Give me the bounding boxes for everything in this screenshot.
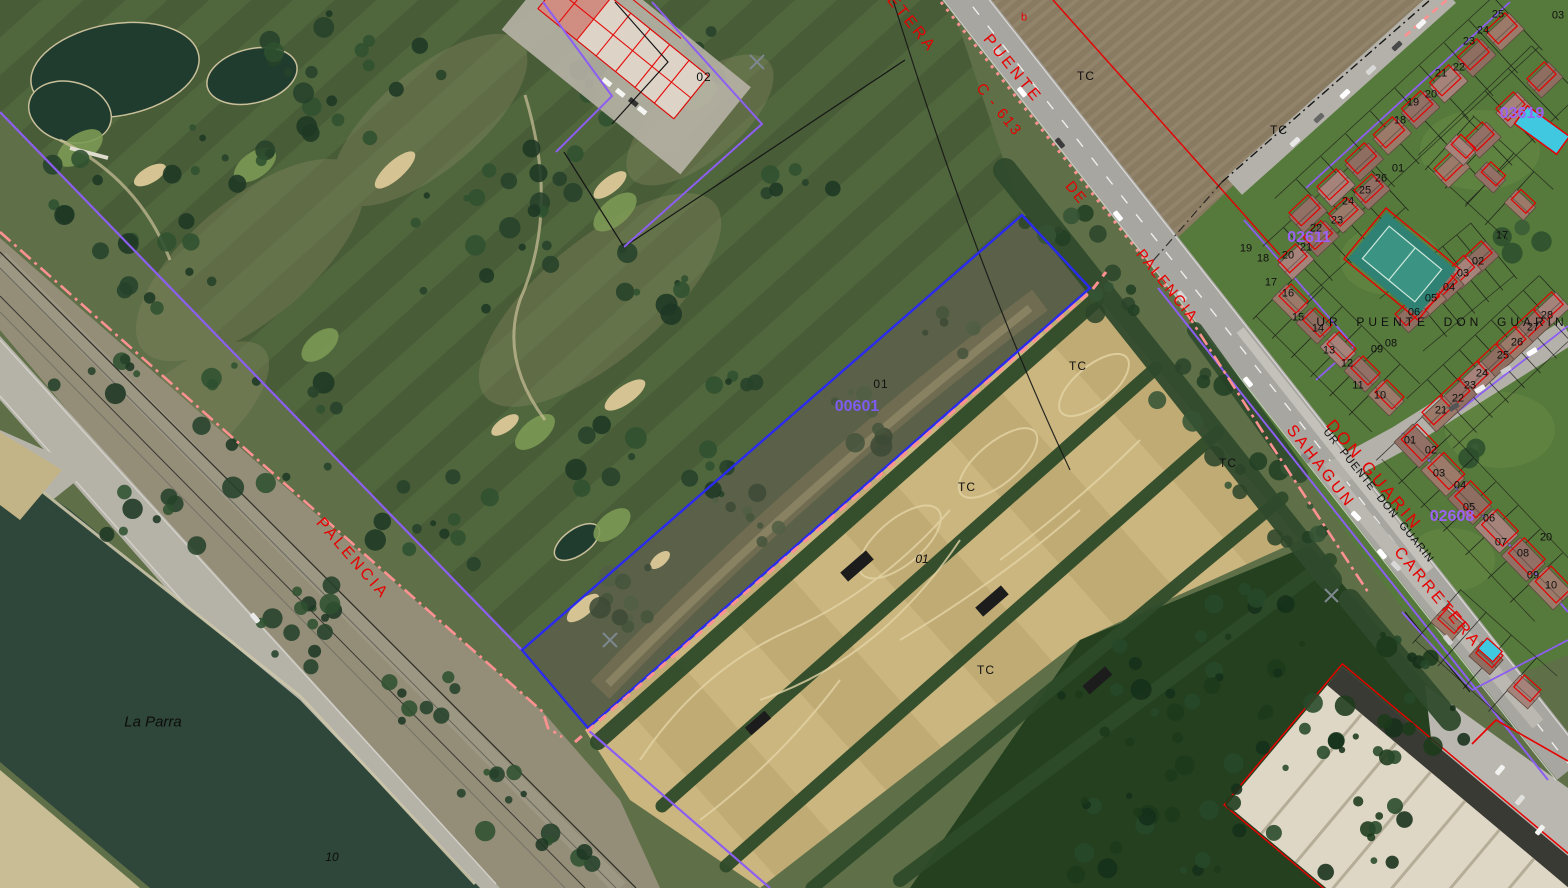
aerial-imagery-layer [0, 0, 1568, 888]
map-viewport[interactable]: CARRETERAPUENTEC - 613DEPALENCIAPALENCIA… [0, 0, 1568, 888]
